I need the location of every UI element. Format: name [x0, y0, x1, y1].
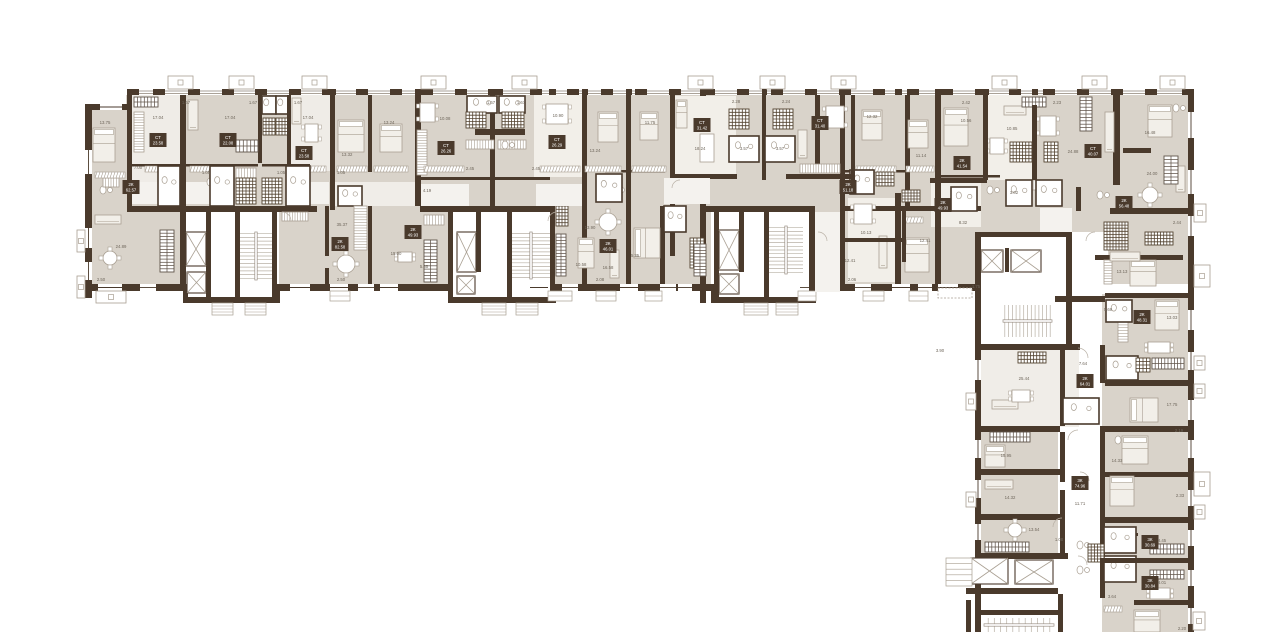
svg-text:13.75: 13.75 [100, 120, 111, 125]
svg-text:16.58: 16.58 [603, 265, 614, 270]
svg-text:12.32: 12.32 [867, 114, 878, 119]
svg-text:8.32: 8.32 [959, 220, 968, 225]
svg-text:17.75: 17.75 [1167, 402, 1178, 407]
svg-text:1.67: 1.67 [182, 100, 191, 105]
svg-text:5.35: 5.35 [420, 264, 429, 269]
svg-text:4.19: 4.19 [423, 188, 432, 193]
svg-text:1.67: 1.67 [294, 100, 303, 105]
svg-text:17.04: 17.04 [225, 115, 236, 120]
svg-text:1.05: 1.05 [202, 170, 211, 175]
svg-text:2.42: 2.42 [962, 100, 971, 105]
svg-text:2.28: 2.28 [732, 99, 741, 104]
svg-text:2К: 2К [337, 239, 343, 244]
svg-text:2.33: 2.33 [1176, 493, 1185, 498]
svg-text:7.00: 7.00 [134, 165, 143, 170]
svg-text:11.75: 11.75 [645, 120, 656, 125]
svg-text:13.03: 13.03 [1167, 315, 1178, 320]
svg-text:17.04: 17.04 [153, 115, 164, 120]
svg-text:10.85: 10.85 [1007, 126, 1018, 131]
svg-text:СТ: СТ [1090, 146, 1096, 151]
svg-text:СТ: СТ [155, 135, 161, 140]
svg-text:13.24: 13.24 [590, 148, 601, 153]
svg-text:2.45: 2.45 [532, 166, 541, 171]
svg-text:30.69: 30.69 [1145, 543, 1156, 548]
svg-text:2К: 2К [1139, 312, 1145, 317]
svg-text:64.01: 64.01 [1080, 382, 1091, 387]
svg-text:3.64: 3.64 [1108, 594, 1117, 599]
svg-text:1.67: 1.67 [487, 100, 496, 105]
svg-text:8.45: 8.45 [1158, 538, 1167, 543]
svg-text:13.90: 13.90 [585, 225, 596, 230]
svg-text:5.69: 5.69 [1104, 307, 1113, 312]
svg-text:2К: 2К [959, 158, 965, 163]
svg-text:25.44: 25.44 [1019, 376, 1030, 381]
svg-text:1.05: 1.05 [277, 170, 286, 175]
svg-text:2.20: 2.20 [1178, 626, 1187, 631]
svg-text:3.57: 3.57 [740, 146, 749, 151]
svg-text:24.00: 24.00 [1147, 171, 1158, 176]
svg-text:3К: 3К [1147, 578, 1153, 583]
svg-text:16.48: 16.48 [1145, 130, 1156, 135]
svg-text:18.24: 18.24 [695, 146, 706, 151]
svg-text:2.23: 2.23 [1053, 100, 1062, 105]
svg-text:2.06: 2.06 [848, 277, 857, 282]
svg-text:10.58: 10.58 [576, 262, 587, 267]
svg-text:3К: 3К [1077, 478, 1083, 483]
svg-text:10.90: 10.90 [553, 113, 564, 118]
svg-text:13.13: 13.13 [1117, 269, 1128, 274]
svg-text:2.50: 2.50 [337, 277, 346, 282]
svg-text:14.33: 14.33 [1112, 458, 1123, 463]
svg-text:3.02: 3.02 [1010, 190, 1019, 195]
svg-text:2.50: 2.50 [97, 277, 106, 282]
svg-text:13.32: 13.32 [342, 152, 353, 157]
svg-text:24.88: 24.88 [1068, 149, 1079, 154]
svg-text:24.89: 24.89 [116, 244, 127, 249]
svg-text:1.67: 1.67 [249, 100, 258, 105]
svg-text:13.54: 13.54 [1029, 527, 1040, 532]
svg-text:СТ: СТ [225, 135, 231, 140]
svg-text:3.57: 3.57 [776, 146, 785, 151]
svg-text:56.48: 56.48 [1119, 204, 1130, 209]
svg-text:7.64: 7.64 [1079, 361, 1088, 366]
svg-text:10.13: 10.13 [861, 230, 872, 235]
svg-text:12.41: 12.41 [845, 258, 856, 263]
svg-text:22.08: 22.08 [223, 141, 234, 146]
svg-text:49.93: 49.93 [938, 206, 949, 211]
svg-text:35.37: 35.37 [337, 222, 348, 227]
svg-text:10.08: 10.08 [440, 116, 451, 121]
svg-text:2К: 2К [1121, 198, 1127, 203]
svg-text:49.93: 49.93 [408, 233, 419, 238]
svg-text:30.84: 30.84 [1145, 584, 1156, 589]
svg-text:62.57: 62.57 [126, 188, 137, 193]
svg-text:14.32: 14.32 [1005, 495, 1016, 500]
svg-text:15.95: 15.95 [1001, 453, 1012, 458]
svg-text:31.40: 31.40 [815, 124, 826, 129]
svg-text:2К: 2К [845, 182, 851, 187]
svg-text:2.24: 2.24 [782, 99, 791, 104]
svg-text:1.08: 1.08 [1055, 537, 1064, 542]
svg-text:10.56: 10.56 [961, 118, 972, 123]
svg-text:26.26: 26.26 [441, 149, 452, 154]
svg-text:3К: 3К [1147, 537, 1153, 542]
svg-text:СТ: СТ [301, 148, 307, 153]
svg-text:2К: 2К [605, 241, 611, 246]
svg-text:40.07: 40.07 [1088, 152, 1099, 157]
svg-text:2К: 2К [410, 227, 416, 232]
svg-text:1.05: 1.05 [337, 170, 346, 175]
svg-text:СТ: СТ [443, 143, 449, 148]
svg-text:2К: 2К [128, 182, 134, 187]
svg-text:23.58: 23.58 [299, 154, 310, 159]
svg-text:11.14: 11.14 [916, 153, 927, 158]
svg-text:15.00: 15.00 [391, 251, 402, 256]
svg-text:2.08: 2.08 [596, 277, 605, 282]
svg-text:82.58: 82.58 [335, 245, 346, 250]
svg-text:12.41: 12.41 [920, 238, 931, 243]
svg-text:46.01: 46.01 [603, 247, 614, 252]
svg-text:СТ: СТ [699, 120, 705, 125]
svg-text:74.96: 74.96 [1075, 484, 1086, 489]
svg-text:1.67: 1.67 [517, 100, 526, 105]
svg-text:13.24: 13.24 [384, 120, 395, 125]
svg-text:СТ: СТ [817, 118, 823, 123]
svg-text:1.75: 1.75 [972, 284, 981, 289]
svg-text:41.54: 41.54 [957, 164, 968, 169]
svg-text:2К: 2К [940, 200, 946, 205]
svg-text:8.01: 8.01 [1158, 580, 1167, 585]
svg-text:51.18: 51.18 [843, 188, 854, 193]
svg-text:2.19: 2.19 [1175, 428, 1184, 433]
svg-text:23.58: 23.58 [153, 141, 164, 146]
svg-text:11.71: 11.71 [1075, 501, 1086, 506]
svg-text:17.04: 17.04 [303, 115, 314, 120]
svg-text:СТ: СТ [554, 137, 560, 142]
svg-text:3.90: 3.90 [936, 348, 945, 353]
svg-text:2.44: 2.44 [1173, 220, 1182, 225]
svg-text:2К: 2К [1082, 376, 1088, 381]
svg-text:2.45: 2.45 [466, 166, 475, 171]
svg-text:31.42: 31.42 [697, 126, 708, 131]
svg-text:48.31: 48.31 [1137, 318, 1148, 323]
svg-text:5.35: 5.35 [631, 253, 640, 258]
svg-text:26.29: 26.29 [552, 143, 563, 148]
